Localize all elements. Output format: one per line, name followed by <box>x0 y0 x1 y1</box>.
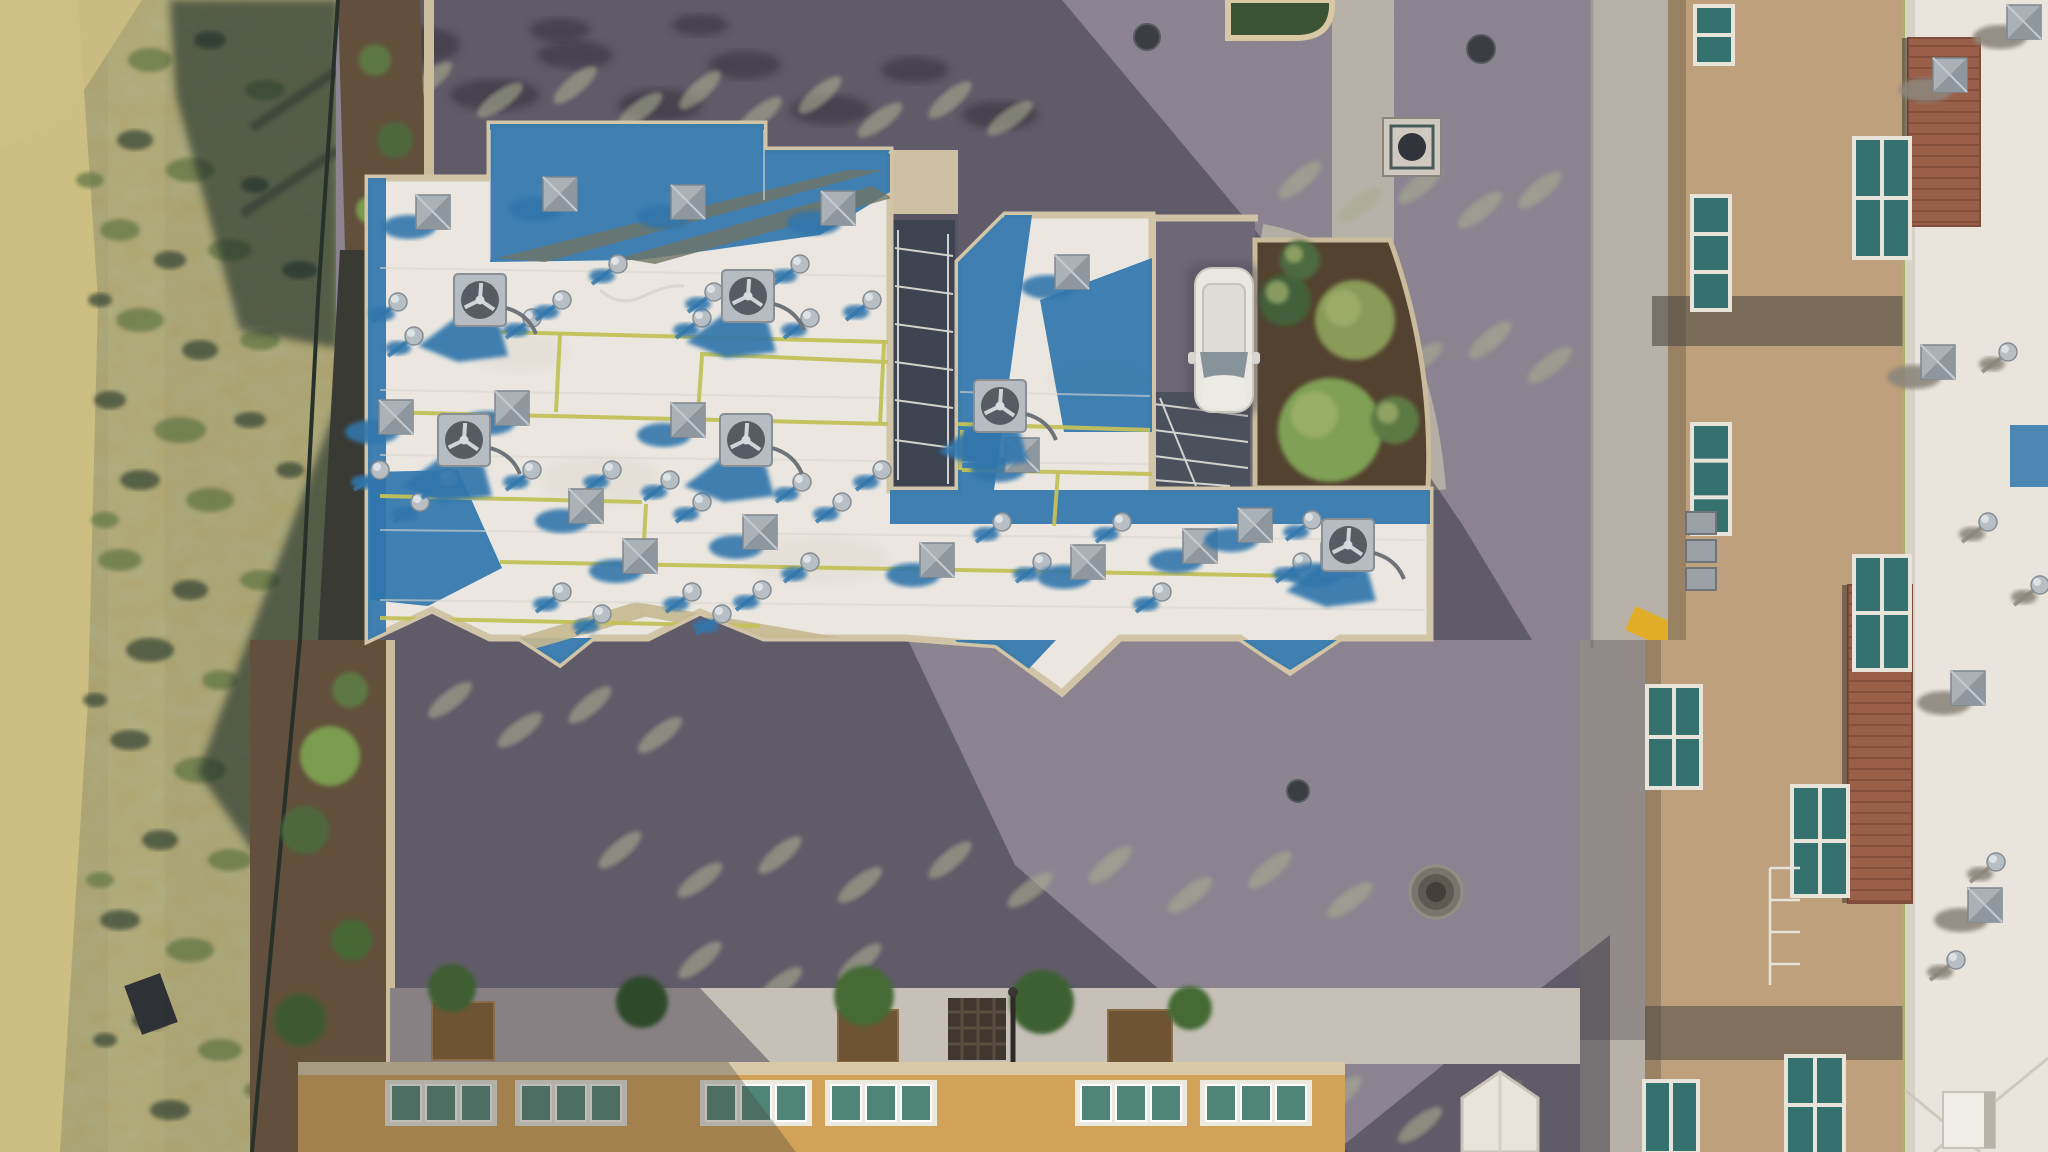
patio-tree <box>834 966 894 1026</box>
clerestory-pane <box>866 1085 896 1121</box>
vent-dome <box>801 309 819 327</box>
fan-hub <box>476 296 485 305</box>
vent-dome <box>993 513 1011 531</box>
vent-dome <box>389 293 407 311</box>
vent-highlight <box>1115 515 1123 523</box>
shrub <box>100 219 140 241</box>
window-pane <box>1794 788 1818 839</box>
shrub <box>142 830 178 850</box>
vent-dome <box>833 493 851 511</box>
median-planting <box>1228 0 1332 38</box>
canopy-highlight <box>1291 391 1338 438</box>
shrub <box>150 1100 190 1120</box>
vent-highlight <box>2001 345 2009 353</box>
car <box>1186 262 1260 416</box>
shrub <box>186 488 234 512</box>
vent-highlight <box>1949 953 1957 961</box>
vent-dome <box>523 461 541 479</box>
double-ring-manhole <box>1410 866 1462 918</box>
vent-highlight <box>391 295 399 303</box>
window-pane <box>1673 1083 1696 1151</box>
window-pane <box>1694 463 1728 496</box>
window <box>1645 684 1703 790</box>
breezeway-gap-lower <box>1645 1006 1905 1060</box>
clerestory-pane <box>1116 1085 1146 1121</box>
meter-boxes <box>1686 512 1716 590</box>
orange-facade-shadow <box>298 1062 728 1152</box>
car-windshield <box>1200 352 1248 378</box>
vent-dome <box>593 605 611 623</box>
shrub <box>76 172 104 188</box>
clerestory-group <box>825 1080 937 1126</box>
fan-hub <box>744 292 753 301</box>
utility-vault <box>1383 118 1441 176</box>
vent-highlight <box>413 495 421 503</box>
olive-tree <box>1371 396 1419 444</box>
window <box>1852 554 1912 672</box>
vent-highlight <box>685 585 693 593</box>
shrub <box>198 1039 242 1061</box>
window-pane <box>1694 426 1728 459</box>
manhole-cover <box>1287 780 1309 802</box>
manhole-cover <box>1467 35 1495 63</box>
shrub <box>94 391 126 409</box>
vent-highlight <box>755 583 763 591</box>
vent-dome <box>1987 853 2005 871</box>
vent-highlight <box>835 495 843 503</box>
vent-highlight <box>707 285 715 293</box>
vent-dome <box>1979 513 1997 531</box>
fan-hub <box>996 402 1005 411</box>
window-pane <box>1822 788 1846 839</box>
window-pane <box>1676 739 1699 786</box>
car-mirror-left <box>1188 352 1196 364</box>
shrub <box>154 251 186 269</box>
vent-dome <box>603 461 621 479</box>
vent-highlight <box>2033 578 2041 586</box>
planter-box <box>432 1002 494 1060</box>
window <box>1642 1079 1700 1152</box>
window-pane <box>1817 1058 1842 1103</box>
patio-tree <box>1010 970 1074 1034</box>
window-pane <box>1788 1107 1813 1152</box>
canopy-highlight <box>1266 281 1289 304</box>
window-pane <box>1884 140 1908 196</box>
olive-tree <box>1259 274 1311 326</box>
window <box>1790 784 1850 898</box>
lamp-head <box>1008 987 1018 997</box>
clerestory-pane <box>901 1085 931 1121</box>
vent-dome <box>1153 583 1171 601</box>
shrub <box>276 462 304 478</box>
vent-highlight <box>605 463 613 471</box>
vent-dome <box>693 309 711 327</box>
window-pane <box>1697 37 1731 62</box>
shrub <box>91 512 119 528</box>
window <box>1693 4 1735 66</box>
vent-highlight <box>595 607 603 615</box>
window-pane <box>1856 558 1880 611</box>
vent-dome <box>1947 951 1965 969</box>
window-pane <box>1694 236 1728 270</box>
window-pane <box>1856 615 1880 668</box>
landscape-planter <box>1255 240 1429 488</box>
shrub <box>332 920 372 960</box>
shrub <box>166 938 214 962</box>
roof-chimney <box>1943 1092 1995 1148</box>
vent-dome <box>661 471 679 489</box>
shrub <box>93 1033 117 1047</box>
tree-shadow <box>672 14 728 36</box>
clerestory-group <box>1200 1080 1312 1126</box>
vent-highlight <box>555 585 563 593</box>
vent-highlight <box>865 293 873 301</box>
vent-dome <box>801 553 819 571</box>
vent-highlight <box>995 515 1003 523</box>
tree-shadow <box>530 18 590 42</box>
shrub <box>172 580 208 600</box>
fan-hub <box>1344 541 1353 550</box>
vent-dome <box>791 255 809 273</box>
vent-highlight <box>663 473 671 481</box>
clerestory-pane <box>776 1085 806 1121</box>
window-pane <box>1694 274 1728 308</box>
window-pane <box>1856 200 1880 256</box>
shrub <box>126 638 174 662</box>
shrub <box>208 849 252 871</box>
vent-highlight <box>1295 555 1303 563</box>
vent-dome <box>1113 513 1131 531</box>
median-island <box>1228 0 1332 38</box>
clerestory-pane <box>1241 1085 1271 1121</box>
window-pane <box>1676 688 1699 735</box>
olive-tree <box>1280 240 1320 280</box>
window <box>1784 1054 1846 1152</box>
right-roof-shadow-blue <box>2010 425 2048 487</box>
vent-highlight <box>555 293 563 301</box>
shrub <box>88 293 112 307</box>
vent-dome <box>1303 511 1321 529</box>
window-pane <box>1697 8 1731 33</box>
shrub <box>377 122 413 158</box>
clerestory-pane <box>1206 1085 1236 1121</box>
shrub <box>86 872 114 888</box>
window-pane <box>1788 1058 1813 1103</box>
vent-dome <box>793 473 811 491</box>
vent-dome <box>683 583 701 601</box>
shrub <box>116 308 164 332</box>
car-mirror-right <box>1252 352 1260 364</box>
shrub <box>110 730 150 750</box>
vent-highlight <box>793 257 801 265</box>
patio-tree <box>1168 986 1212 1030</box>
patio-tree <box>616 976 668 1028</box>
shrub <box>300 726 360 786</box>
vent-highlight <box>803 311 811 319</box>
vent-highlight <box>1155 585 1163 593</box>
vent-highlight <box>611 257 619 265</box>
vent-dome <box>553 583 571 601</box>
shrub <box>100 910 140 930</box>
vent-highlight <box>1989 855 1997 863</box>
shrub <box>117 130 153 150</box>
tree-shadow <box>537 41 613 69</box>
shrub <box>83 693 107 707</box>
window <box>1690 194 1732 312</box>
window-pane <box>1884 558 1908 611</box>
vent-highlight <box>407 329 415 337</box>
shrub <box>128 48 172 72</box>
vent-highlight <box>795 475 803 483</box>
window-pane <box>1817 1107 1842 1152</box>
shrub <box>332 672 368 708</box>
trellis <box>948 998 1006 1060</box>
vent-highlight <box>695 495 703 503</box>
shrub <box>359 44 391 76</box>
vent-highlight <box>803 555 811 563</box>
window-pane <box>1856 140 1880 196</box>
olive-tree <box>1315 280 1395 360</box>
clerestory-pane <box>831 1085 861 1121</box>
fan-hub <box>460 436 469 445</box>
aerial-photo: Top-down aerial drone photograph of a re… <box>0 0 2048 1152</box>
entry-landing <box>890 150 958 214</box>
vent-dome <box>609 255 627 273</box>
window-pane <box>1649 688 1672 735</box>
shrub <box>98 549 142 571</box>
shrub <box>154 417 206 443</box>
canopy-highlight <box>1377 402 1399 424</box>
patio-tree <box>428 964 476 1012</box>
vent-highlight <box>875 463 883 471</box>
vent-dome <box>371 461 389 479</box>
vent-highlight <box>1981 515 1989 523</box>
vent-dome <box>705 283 723 301</box>
window-pane <box>1694 198 1728 232</box>
manhole-cover <box>1134 24 1160 50</box>
clerestory-pane <box>1081 1085 1111 1121</box>
shrub <box>281 806 329 854</box>
vent-highlight <box>1305 513 1313 521</box>
clerestory-group <box>1075 1080 1187 1126</box>
car-hood <box>1202 375 1246 410</box>
window-pane <box>1649 739 1672 786</box>
breezeway-gap-upper <box>1652 296 1905 346</box>
vent-dome <box>753 581 771 599</box>
vent-highlight <box>695 311 703 319</box>
canopy-highlight <box>1285 245 1303 263</box>
shrub <box>182 340 218 360</box>
clerestory-pane <box>1276 1085 1306 1121</box>
tree-shadow <box>881 57 949 83</box>
vent-highlight <box>525 463 533 471</box>
window-pane <box>1822 843 1846 894</box>
stair-gap <box>890 150 958 490</box>
planter-box <box>1108 1010 1172 1064</box>
window-pane <box>1884 615 1908 668</box>
car-roof <box>1203 284 1245 360</box>
shrub <box>274 994 326 1046</box>
sidewalk-shadow <box>1580 640 1646 1040</box>
vent-dome <box>1999 343 2017 361</box>
right-townhomes <box>1642 0 2048 1152</box>
olive-tree <box>1278 378 1382 482</box>
vent-dome <box>405 327 423 345</box>
vent-dome <box>553 291 571 309</box>
clerestory-pane <box>1151 1085 1181 1121</box>
vent-highlight <box>715 607 723 615</box>
window <box>1852 136 1912 260</box>
vent-highlight <box>373 463 381 471</box>
canopy-highlight <box>1325 290 1361 326</box>
vent-dome <box>713 605 731 623</box>
aerial-photo-canvas: Top-down aerial drone photograph of a re… <box>0 0 2048 1152</box>
window-pane <box>1646 1083 1669 1151</box>
shrub <box>234 412 266 428</box>
window-pane <box>1884 200 1908 256</box>
vent-dome <box>863 291 881 309</box>
vent-dome <box>873 461 891 479</box>
vent-highlight <box>1035 555 1043 563</box>
shrub <box>120 470 160 490</box>
fan-hub <box>742 436 751 445</box>
